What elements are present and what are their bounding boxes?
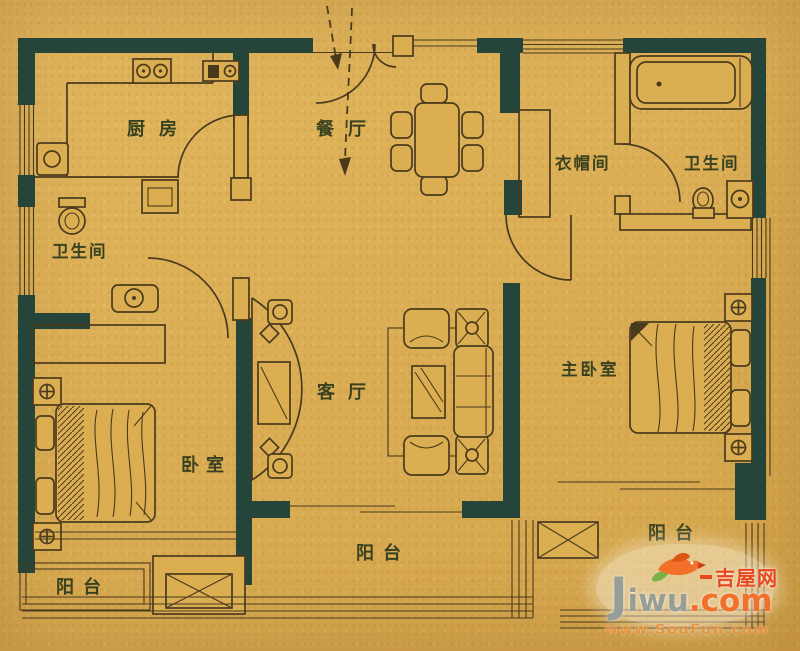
- closet-hatch-icon: [32, 325, 165, 363]
- speaker-icon: [268, 300, 292, 324]
- wall-left-2: [18, 175, 35, 207]
- wall-top-right: [623, 38, 766, 53]
- bedroom: 卧室: [33, 378, 231, 550]
- window-master-right: [753, 218, 767, 278]
- wall-south-stub-right: [462, 501, 520, 518]
- bathroom-right-label: 卫生间: [684, 153, 740, 173]
- bath-left-door-arc: [148, 258, 228, 338]
- watermark-tld: .com: [689, 583, 773, 619]
- wall-right-2: [751, 278, 766, 463]
- bathroom-left-label: 卫生间: [52, 241, 108, 261]
- watermark-rest: iwu: [628, 583, 689, 619]
- tv-cabinet-icon: [252, 298, 302, 480]
- nightstand-flower: [732, 301, 746, 315]
- ac-platform-icon: [153, 556, 245, 614]
- dining-top-line: [413, 40, 477, 46]
- window-bath-left: [20, 207, 34, 295]
- pillow-icon: [731, 390, 750, 426]
- dining-room: 餐厅: [315, 84, 483, 195]
- wall-top-left: [18, 38, 313, 53]
- washbasin-icon: [112, 285, 158, 312]
- nightstand-flower: [732, 441, 746, 455]
- living-balcony-slider: [290, 506, 462, 512]
- cloak-bath-door-arc: [622, 144, 680, 202]
- cloakroom-label: 衣帽间: [555, 153, 611, 173]
- wall-dining-cloak-divider: [500, 53, 520, 113]
- window-top-cloakroom: [523, 40, 623, 53]
- vanity-icon: [142, 180, 178, 213]
- master-bedroom: 主卧室: [506, 215, 752, 461]
- armchair-icon: [404, 436, 449, 475]
- living-room: 客厅: [252, 298, 493, 480]
- master-window: [558, 482, 737, 489]
- hall-post: [231, 178, 251, 200]
- coffee-table-icon: [412, 366, 445, 418]
- entry-stub-wall: [393, 36, 413, 56]
- pillow-icon: [36, 478, 54, 514]
- watermark-initial: J: [610, 572, 628, 619]
- balcony-left-label: 阳台: [56, 576, 110, 598]
- floor-plan-canvas: 厨房 餐厅 衣帽间: [0, 0, 800, 651]
- cooktop-icon: [203, 61, 239, 81]
- kitchen-label: 厨房: [127, 118, 191, 140]
- dining-label: 餐厅: [315, 118, 380, 140]
- pillow-icon: [36, 416, 54, 450]
- ac-platform-icon: [538, 522, 598, 558]
- sofa-icon: [388, 309, 493, 475]
- balcony-center-label: 阳台: [356, 542, 410, 564]
- bed-icon: [630, 322, 750, 433]
- sofa-body: [454, 346, 493, 437]
- cloak-bath-stub: [615, 196, 630, 214]
- wall-top-mid: [477, 38, 523, 53]
- pillow-icon: [731, 330, 750, 366]
- washbasin-icon: [727, 181, 753, 218]
- wardrobe-icon: [519, 110, 550, 217]
- watermark: 吉屋网 Jiwu.com www.SouFun.com: [596, 544, 782, 644]
- living-label: 客厅: [317, 381, 379, 403]
- master-label: 主卧室: [561, 359, 620, 379]
- sink-icon: [37, 143, 68, 175]
- window-kitchen-left: [20, 105, 34, 175]
- bath-left-door-leaf: [233, 278, 249, 320]
- wall-living-master-divider: [503, 283, 520, 518]
- wall-south-stub-left: [252, 501, 290, 518]
- wall-left-1: [18, 53, 35, 105]
- wall-bedroom-living-divider: [236, 318, 252, 585]
- bathtub-icon: [630, 56, 752, 109]
- armchair-icon: [404, 309, 449, 348]
- master-door-arc: [506, 215, 571, 280]
- wall-right-corner: [735, 463, 766, 520]
- plant-icon: [456, 309, 488, 347]
- speaker-icon: [268, 454, 292, 478]
- bathroom-right: 卫生间: [630, 56, 753, 218]
- bedroom-window: [35, 532, 236, 539]
- kitchen: 厨房: [35, 53, 241, 178]
- toilet-icon: [59, 198, 85, 234]
- balcony-right-label: 阳台: [648, 522, 702, 544]
- bed-icon: [36, 404, 155, 522]
- toilet-icon: [693, 188, 714, 218]
- balcony-left: 阳台: [20, 563, 150, 610]
- nightstand-flower: [40, 385, 54, 399]
- dining-table-icon: [391, 84, 483, 195]
- cloakroom: 衣帽间: [519, 110, 680, 217]
- kitchen-door-leaf: [234, 115, 248, 178]
- cloak-bath-divider: [615, 53, 630, 144]
- watermark-site-name: Jiwu.com: [610, 572, 773, 619]
- plant-icon: [456, 436, 488, 474]
- watermark-source-url: www.SouFun.com: [592, 622, 782, 638]
- stove-icon: [133, 59, 171, 83]
- entry-arrow-icon: [327, 6, 352, 176]
- bedroom-label: 卧室: [181, 454, 231, 476]
